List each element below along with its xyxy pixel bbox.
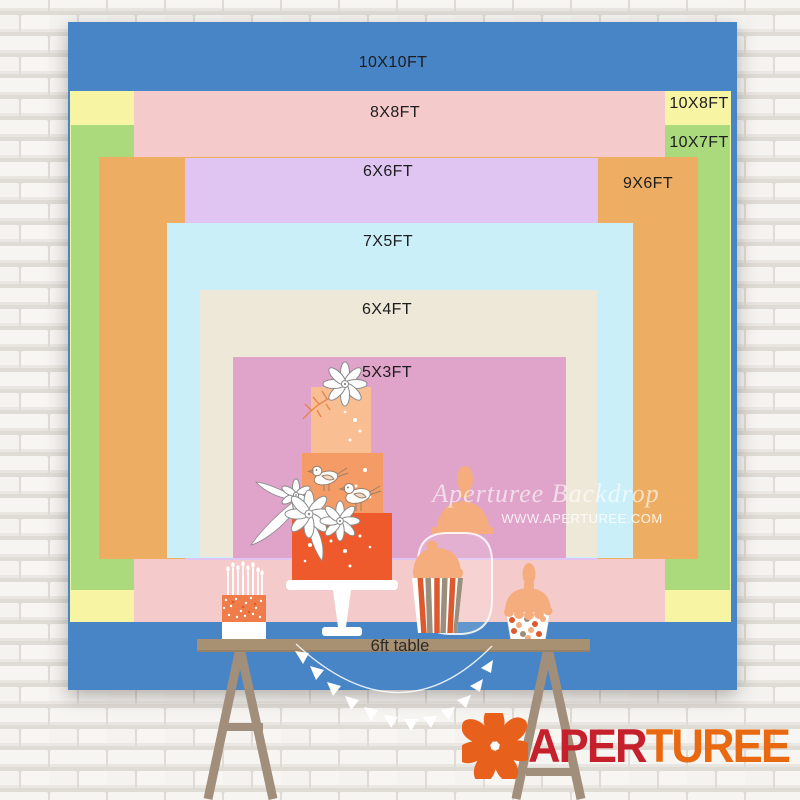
table-size-label: 6ft table [371, 637, 430, 656]
size-label-7x5: 7X5FT [363, 233, 413, 251]
size-label-6x4: 6X4FT [362, 301, 412, 319]
table-leg-left [208, 648, 273, 799]
aperture-icon [462, 713, 528, 779]
size-label-5x3: 5X3FT [362, 364, 412, 382]
size-label-6x6: 6X6FT [363, 163, 413, 181]
size-label-8x8: 8X8FT [370, 104, 420, 122]
backdrop-size-chart: Aperturee Backdrop [0, 0, 800, 800]
watermark-script: Aperturee Backdrop [418, 479, 674, 509]
aperturee-logo: APERTUREE [462, 710, 797, 782]
size-label-10x7: 10X7FT [669, 134, 728, 152]
watermark-url: WWW.APERTUREE.COM [498, 511, 666, 526]
logo-wordmark: APERTUREE [528, 713, 789, 779]
size-label-10x10: 10X10FT [359, 54, 428, 72]
size-label-10x8: 10X8FT [669, 95, 728, 113]
logo-text-orange: TUREE [646, 719, 789, 772]
candle-cake-icon [222, 561, 266, 639]
logo-text-red: APER [528, 719, 646, 772]
size-label-9x6: 9X6FT [623, 175, 673, 193]
cake-stand-icon [286, 580, 398, 636]
tiered-cake-icon [251, 362, 398, 636]
candy-cup-icon [504, 563, 553, 641]
